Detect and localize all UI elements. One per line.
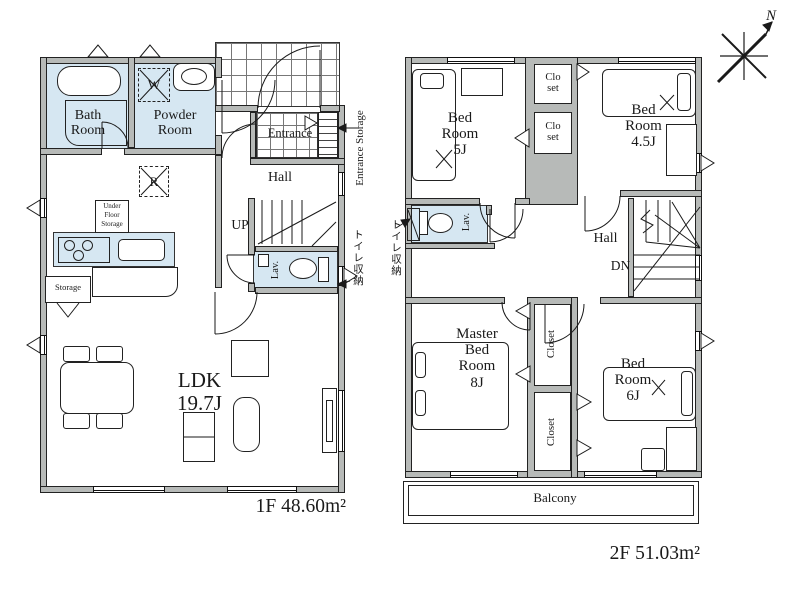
balcony-label: Balcony bbox=[500, 491, 610, 505]
entrance-label: Entrance bbox=[255, 127, 325, 141]
storage-1f-label: Storage bbox=[45, 283, 91, 292]
under-floor-storage-label: Under Floor Storage bbox=[95, 202, 129, 229]
f1-stairs-lines bbox=[258, 200, 336, 246]
up-label: UP bbox=[220, 218, 260, 233]
bath-room-label: Bath Room bbox=[48, 108, 128, 138]
closet-label-2: Closet bbox=[546, 392, 558, 472]
f1-door-arcs bbox=[57, 46, 320, 334]
hall-2f-label: Hall bbox=[578, 231, 633, 246]
f2-stairs-lines bbox=[634, 200, 700, 291]
toilet-storage-note-1f: トイレ収納 bbox=[348, 226, 363, 290]
lav-2f-label: Lav. bbox=[461, 204, 473, 240]
closet-label-1: Closet bbox=[546, 304, 558, 384]
closet-small-label-2: Clo set bbox=[533, 121, 573, 144]
toilet-storage-note-2f: トイレ収納 bbox=[386, 216, 401, 280]
compass-north-label: N bbox=[760, 8, 782, 24]
lav-1f-label: Lav. bbox=[270, 252, 282, 288]
bed-room-45j-label: Bed Room 4.5J bbox=[606, 102, 681, 151]
bed-room-5j-label: Bed Room 5J bbox=[425, 110, 495, 159]
ldk-label: LDK 19.7J bbox=[157, 369, 242, 414]
closet-small-label-1: Clo set bbox=[533, 72, 573, 95]
f2-door-arcs bbox=[408, 196, 620, 343]
entrance-storage-note: Entrance Storage bbox=[355, 78, 371, 218]
bed-room-6j-label: Bed Room 6J bbox=[598, 356, 668, 405]
master-bed-room-label: Master Bed Room 8J bbox=[437, 326, 517, 391]
floor-plan-canvas: W R bbox=[0, 0, 800, 600]
compass-icon bbox=[718, 22, 772, 82]
f1-area-label: 1F 48.60m² bbox=[228, 496, 346, 517]
dn-label: DN bbox=[598, 259, 643, 274]
f2-area-label: 2F 51.03m² bbox=[588, 543, 700, 564]
powder-room-label: Powder Room bbox=[135, 108, 215, 138]
hall-1f-label: Hall bbox=[250, 170, 310, 185]
